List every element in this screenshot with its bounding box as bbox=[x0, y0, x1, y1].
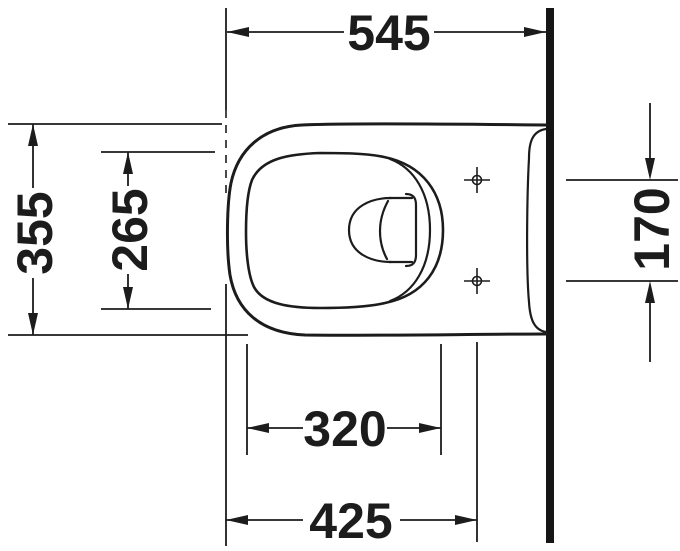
dimension-label-320: 320 bbox=[303, 401, 386, 457]
extension-lines bbox=[8, 8, 678, 546]
arrowhead-up bbox=[28, 124, 38, 146]
wall-section-bar bbox=[546, 8, 554, 543]
dimension-front-to-fixing-holes: 425 bbox=[226, 493, 477, 549]
arrowhead-right bbox=[419, 423, 441, 433]
arrowhead-down bbox=[645, 158, 655, 180]
arrowhead-down bbox=[28, 313, 38, 335]
dimension-label-170: 170 bbox=[624, 187, 680, 270]
dimension-label-545: 545 bbox=[347, 5, 430, 61]
arrowhead-right bbox=[524, 27, 546, 37]
dimension-label-265: 265 bbox=[102, 188, 158, 271]
dimension-bowl-inner-width: 265 bbox=[102, 152, 158, 309]
dimension-fixing-holes-spacing: 170 bbox=[624, 103, 680, 362]
drain-flange-edge bbox=[406, 194, 416, 266]
arrowhead-up bbox=[123, 152, 133, 174]
bowl-rim-inner-contour bbox=[390, 159, 430, 301]
dimension-label-425: 425 bbox=[309, 493, 392, 549]
arrowhead-up bbox=[645, 281, 655, 303]
arrowhead-left bbox=[226, 515, 248, 525]
dimension-depth-total: 545 bbox=[227, 5, 546, 61]
toilet-body bbox=[227, 124, 546, 335]
arrowhead-left bbox=[247, 423, 269, 433]
dimension-bowl-inner-length: 320 bbox=[247, 401, 441, 457]
dimension-width-total: 355 bbox=[7, 124, 63, 335]
drain-outlet-symbol bbox=[349, 194, 416, 266]
drain-inner-arc bbox=[380, 201, 388, 259]
arrowhead-down bbox=[123, 287, 133, 309]
fixing-hole-top bbox=[464, 167, 490, 193]
technical-drawing-canvas: 545 355 265 170 320 425 bbox=[0, 0, 680, 551]
arrowhead-left bbox=[227, 27, 249, 37]
fixing-hole-bottom bbox=[464, 268, 490, 294]
arrowhead-right bbox=[455, 515, 477, 525]
toilet-back-edge-line bbox=[527, 129, 546, 332]
dimension-label-355: 355 bbox=[7, 191, 63, 274]
toilet-dimension-diagram: 545 355 265 170 320 425 bbox=[0, 0, 680, 551]
